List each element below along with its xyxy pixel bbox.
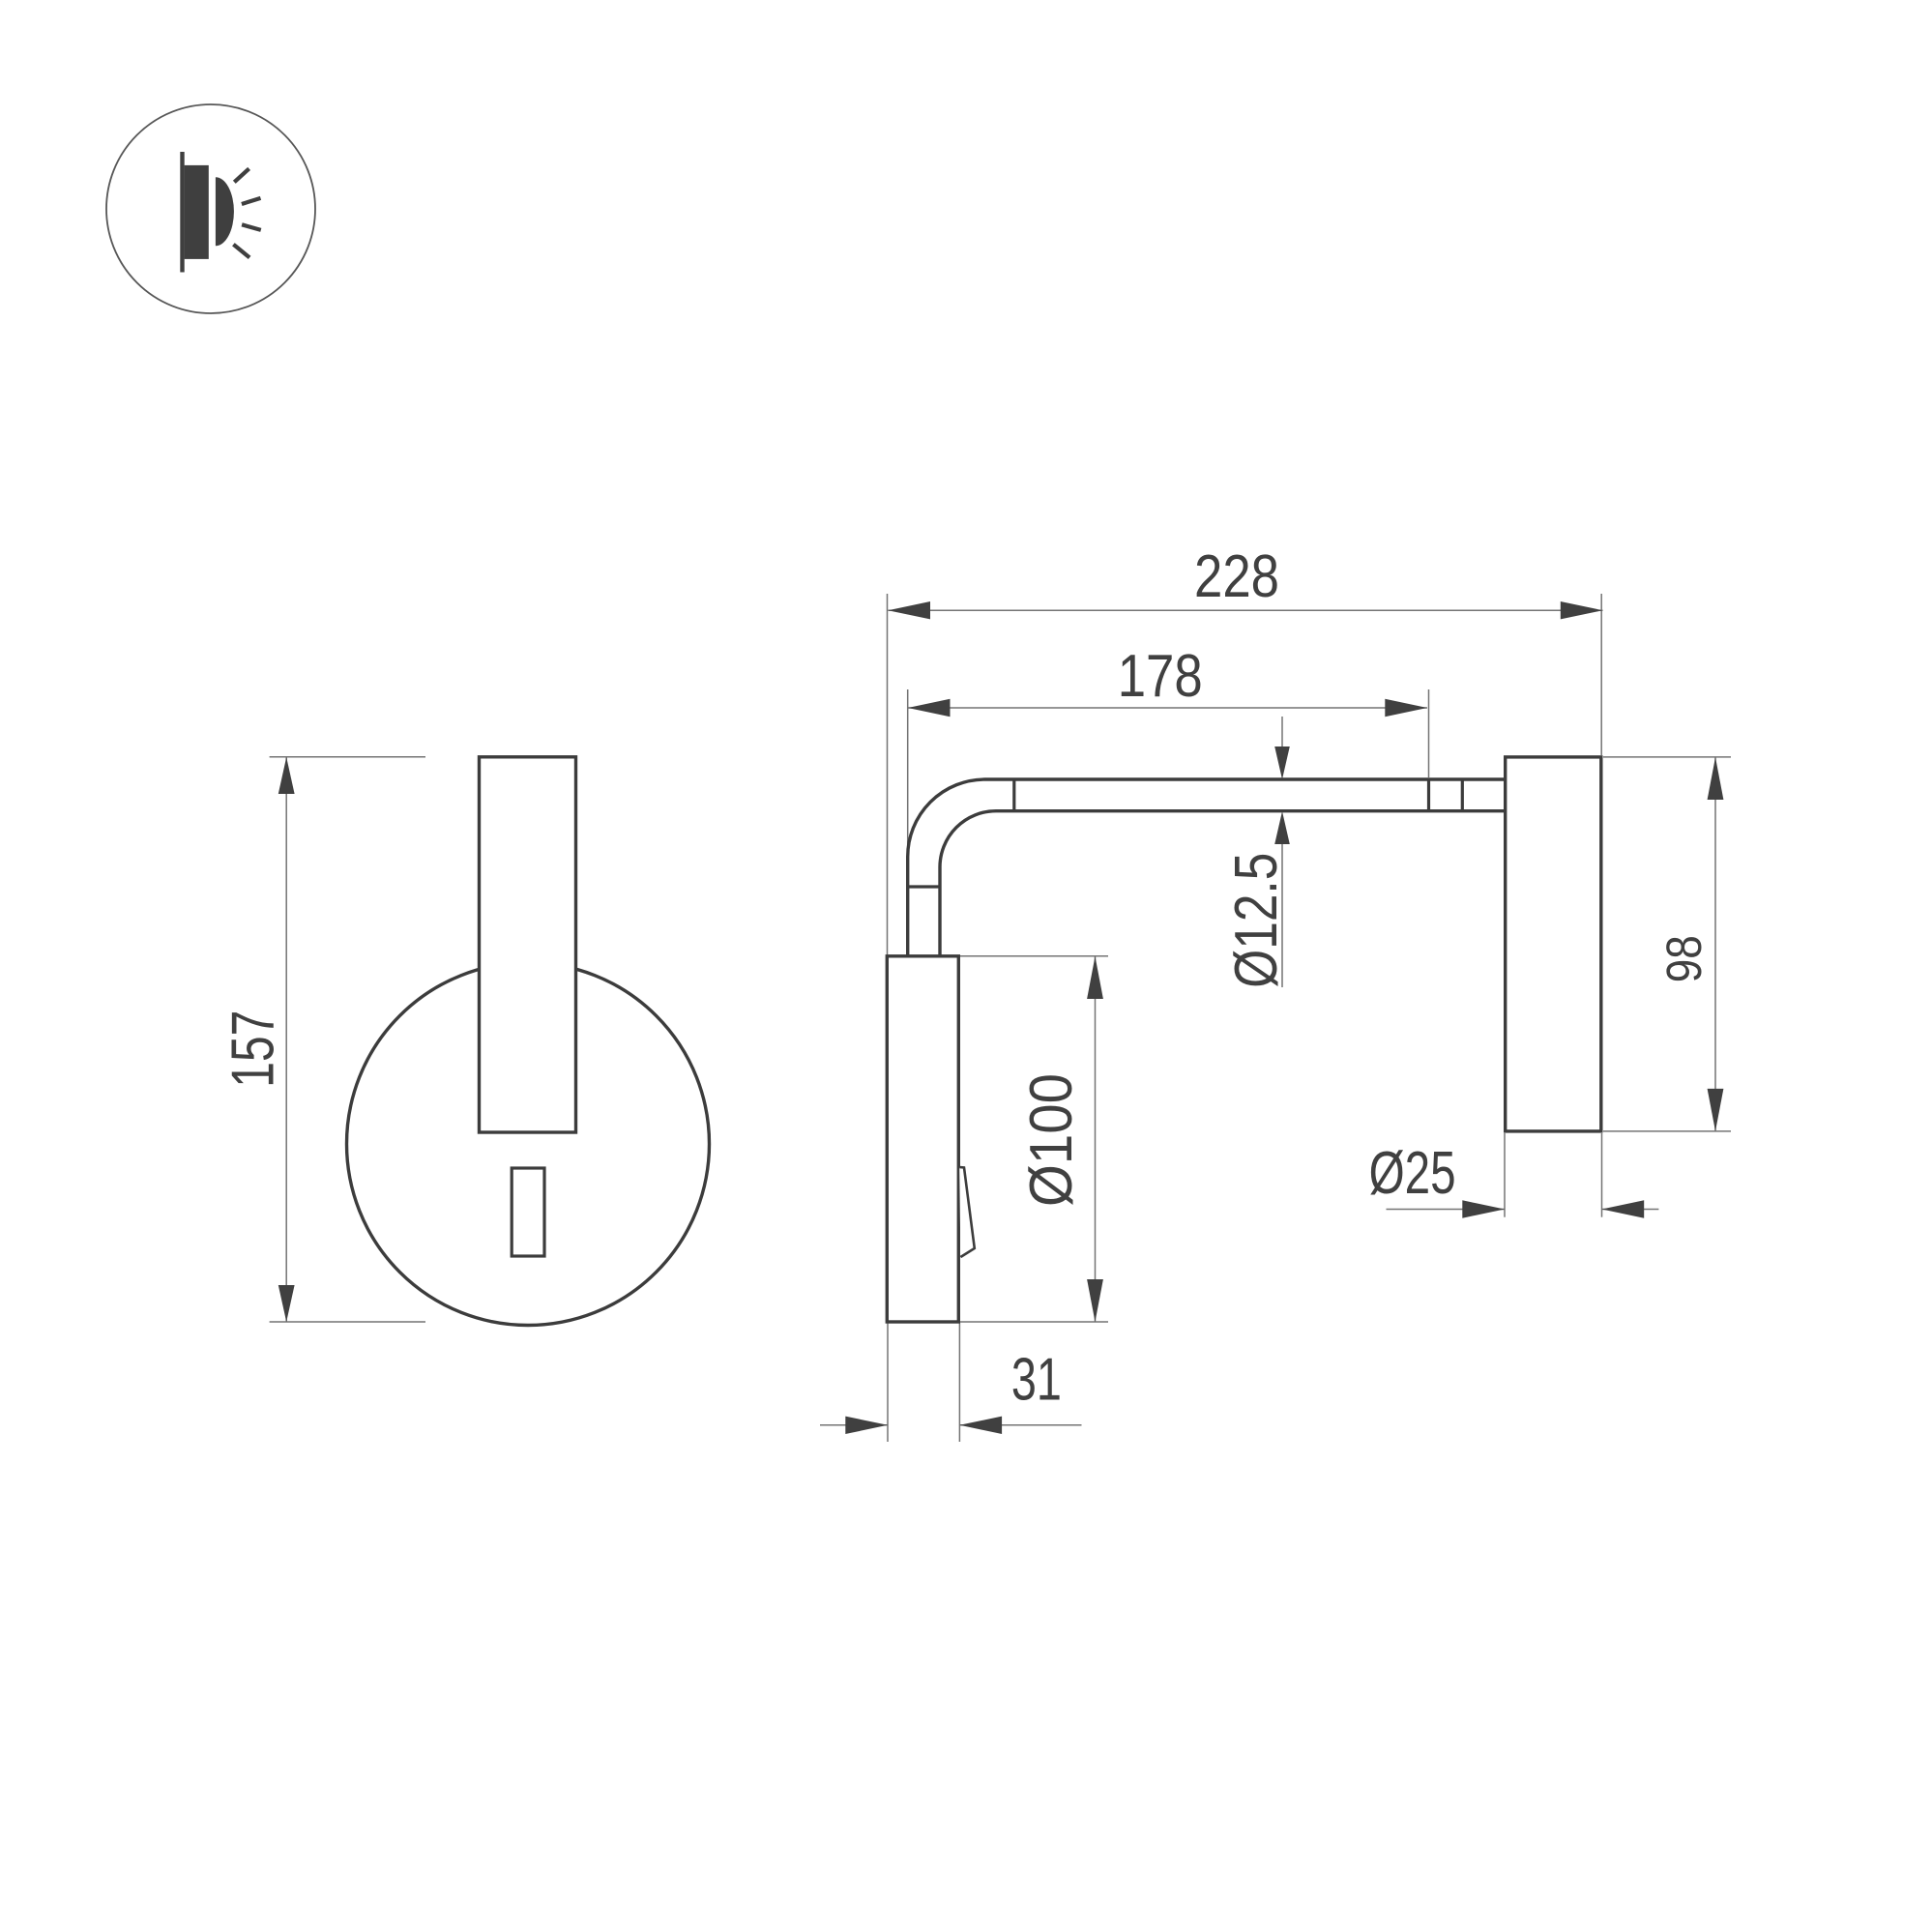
svg-text:228: 228 bbox=[1194, 543, 1279, 610]
svg-text:Ø25: Ø25 bbox=[1369, 1140, 1456, 1207]
svg-text:Ø12.5: Ø12.5 bbox=[1223, 853, 1290, 988]
svg-text:31: 31 bbox=[1011, 1347, 1062, 1414]
svg-text:Ø100: Ø100 bbox=[1018, 1073, 1085, 1207]
svg-text:157: 157 bbox=[220, 1010, 287, 1088]
svg-text:98: 98 bbox=[1656, 935, 1712, 982]
svg-text:178: 178 bbox=[1118, 643, 1203, 710]
